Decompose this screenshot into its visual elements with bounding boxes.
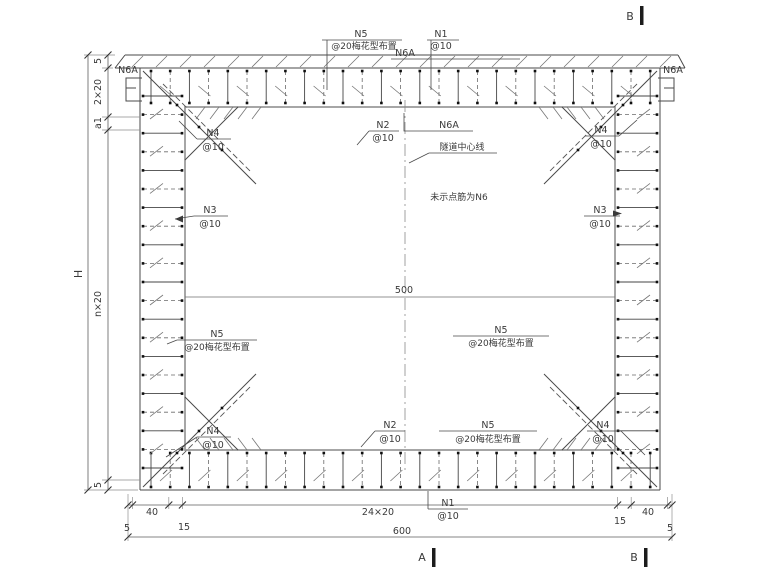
rebar-dot [227, 102, 230, 105]
hatch-line [420, 56, 431, 67]
rebar-dot [617, 355, 620, 358]
haunch-tick [210, 107, 219, 119]
haunch-tick [252, 107, 261, 119]
hatch-line [276, 56, 287, 67]
rebar-dot [476, 452, 479, 455]
rebar-dot [198, 430, 201, 433]
rebar-dot [534, 70, 537, 73]
rebar-dot [181, 299, 184, 302]
hatch-line [204, 56, 215, 67]
rebar-dot [176, 104, 179, 107]
rebar-dot [399, 486, 402, 489]
rebar-dot [323, 486, 326, 489]
tie-bar [150, 332, 163, 342]
rebar-dot [142, 225, 145, 228]
rebar-dot [169, 70, 172, 73]
rebar-dot [617, 318, 620, 321]
haunch-tick [553, 438, 562, 450]
tie-bar [637, 221, 650, 231]
rebar-dot [380, 452, 383, 455]
rebar-dot [142, 299, 145, 302]
rebar-label-n5-right: N5 [494, 325, 507, 336]
tie-bar [150, 146, 163, 156]
rebar-dot [572, 486, 575, 489]
dim-left-5-bottom: 5 [93, 482, 104, 488]
rebar-dot [181, 262, 184, 265]
rebar-dot [438, 70, 441, 73]
rebar-dot [142, 430, 145, 433]
rebar-spacing-n4-bottom-right: @10 [592, 434, 614, 445]
rebar-dot [438, 452, 441, 455]
rebar-dot [342, 70, 345, 73]
rebar-dot [553, 70, 556, 73]
rebar-dot [142, 355, 145, 358]
rebar-dot [246, 486, 249, 489]
rebar-label-n4-top-right: N4 [594, 125, 607, 136]
hatch-line [300, 56, 311, 67]
cad-drawing-page: N5 @20梅花型布置 N1 @10 N6A N6A N6A N2 @10 N6… [0, 0, 760, 570]
section-cut-bar-a-bottom [432, 548, 436, 567]
rebar-dot [553, 452, 556, 455]
hatch-line [444, 56, 455, 67]
rebar-dot [284, 486, 287, 489]
rebar-dot [181, 448, 184, 451]
note-unshown-bars: 未示点筋为N6 [430, 191, 488, 203]
dim-bottom-15-right: 15 [614, 516, 626, 527]
dim-bottom-15-left: 15 [178, 522, 190, 533]
inner-opening-outline [185, 107, 615, 450]
rebar-label-n2-bottom: N2 [383, 420, 396, 431]
rebar-dot [591, 452, 594, 455]
rebar-dot [476, 486, 479, 489]
rebar-dot [380, 70, 383, 73]
rebar-dot [181, 374, 184, 377]
rebar-dot [176, 452, 179, 455]
rebar-label-n3-left: N3 [203, 205, 216, 216]
rebar-spacing-n5-bottom: @20梅花型布置 [455, 433, 520, 445]
rebar-dot [227, 486, 230, 489]
tie-bar [150, 444, 163, 454]
rebar-dot [591, 102, 594, 105]
tie-bar [150, 407, 163, 417]
rebar-dot [438, 102, 441, 105]
rebar-dot [611, 452, 614, 455]
section-cut-bar-b-bottom [644, 548, 648, 567]
rebar-dot [142, 188, 145, 191]
rebar-spacing-n1-bottom: @10 [437, 511, 459, 522]
leader-arrow-n3-left [175, 216, 183, 223]
rebar-dot [656, 411, 659, 414]
rebar-dot [617, 262, 620, 265]
rebar-dot [515, 102, 518, 105]
rebar-label-n2-top: N2 [376, 120, 389, 131]
rebar-dot [419, 70, 422, 73]
rebar-label-n1-bottom: N1 [441, 498, 454, 509]
rebar-dot [142, 448, 145, 451]
rebar-dot [188, 70, 191, 73]
rebar-dot [649, 102, 652, 105]
rebar-dot [656, 355, 659, 358]
rebar-dot [438, 486, 441, 489]
rebar-dot [656, 392, 659, 395]
rebar-dot [380, 102, 383, 105]
rebar-dot [656, 225, 659, 228]
rebar-dot [188, 102, 191, 105]
rebar-dot [181, 206, 184, 209]
slab-rebar-ticks [150, 70, 652, 489]
rebar-dot [142, 337, 145, 340]
rebar-label-n5-top: N5 [354, 29, 367, 40]
rebar-dot [188, 486, 191, 489]
rebar-dot [323, 102, 326, 105]
rebar-label-n5-bottom: N5 [481, 420, 494, 431]
rebar-dot [142, 318, 145, 321]
haunch-tick [553, 107, 562, 119]
hatch-line [228, 56, 239, 67]
rebar-spacing-n4-top-left: @10 [202, 142, 224, 153]
rebar-dot [534, 102, 537, 105]
section-marker-b-bottom: B [630, 551, 638, 564]
rebar-dot [150, 70, 153, 73]
rebar-dot [591, 486, 594, 489]
hatch-line [348, 56, 359, 67]
rebar-dot [495, 102, 498, 105]
rebar-dot [265, 102, 268, 105]
rebar-dot [246, 70, 249, 73]
rebar-dot [303, 486, 306, 489]
rebar-dot [181, 169, 184, 172]
corner-haunch-bars [143, 71, 657, 487]
rebar-spacing-n1-top: @10 [430, 41, 452, 52]
rebar-dot [181, 113, 184, 116]
rebar-dot [181, 355, 184, 358]
rebar-dot [617, 225, 620, 228]
rebar-dot [142, 244, 145, 247]
tie-bar [150, 109, 163, 119]
rebar-dot [457, 486, 460, 489]
rebar-dot [419, 452, 422, 455]
rebar-dot [617, 392, 620, 395]
rebar-label-n4-bottom-left: N4 [206, 426, 219, 437]
rebar-dot [495, 452, 498, 455]
rebar-dot [515, 70, 518, 73]
rebar-dot [265, 486, 268, 489]
rebar-dot [188, 452, 191, 455]
dim-overall-height: H [72, 270, 85, 278]
rebar-dot [323, 70, 326, 73]
rebar-dot [265, 70, 268, 73]
rebar-dot [323, 452, 326, 455]
haunch-tick [595, 107, 604, 119]
dim-left-nx20: n×20 [93, 291, 104, 317]
rebar-dot [142, 151, 145, 154]
rebar-dot [181, 244, 184, 247]
rebar-dot [656, 374, 659, 377]
rebar-dot [181, 95, 184, 98]
rebar-dot [617, 374, 620, 377]
rebar-dot [207, 486, 210, 489]
rebar-dot [617, 132, 620, 135]
rebar-dot [617, 244, 620, 247]
rebar-dot [617, 206, 620, 209]
hatch-line [588, 56, 599, 67]
rebar-dot [656, 448, 659, 451]
rebar-dot [617, 337, 620, 340]
rebar-dot [419, 486, 422, 489]
haunch-tick [238, 107, 247, 119]
rebar-dot [630, 70, 633, 73]
rebar-dot [577, 149, 580, 152]
tie-bar [637, 369, 650, 379]
tunnel-centerline-label: 隧道中心线 [439, 141, 484, 153]
rebar-label-n4-top-left: N4 [206, 128, 219, 139]
rebar-dot [181, 467, 184, 470]
haunch-tick [196, 107, 205, 119]
tie-bar [150, 183, 163, 193]
rebar-dot [622, 452, 625, 455]
rebar-label-n6a-mid: N6A [439, 120, 459, 131]
rebar-dot [399, 70, 402, 73]
rebar-dot [630, 452, 633, 455]
rebar-dot [617, 169, 620, 172]
rebar-dot [656, 337, 659, 340]
dim-left-2x20: 2×20 [93, 79, 104, 105]
rebar-dot [534, 486, 537, 489]
rebar-dot [419, 102, 422, 105]
hatch-line [516, 56, 527, 67]
hatch-line [180, 56, 191, 67]
rebar-dot [515, 486, 518, 489]
tie-bar [637, 146, 650, 156]
rebar-dot [656, 188, 659, 191]
haunch-tick [252, 438, 261, 450]
rebar-dot [617, 467, 620, 470]
rebar-dot [342, 486, 345, 489]
rebar-spacing-n4-top-right: @10 [590, 139, 612, 150]
rebar-dot [553, 486, 556, 489]
rebar-dot [630, 102, 633, 105]
rebar-spacing-n2-top: @10 [372, 133, 394, 144]
rebar-dot [303, 102, 306, 105]
rebar-dot [142, 95, 145, 98]
rebar-dot [142, 374, 145, 377]
rebar-dot [380, 486, 383, 489]
rebar-dot [142, 281, 145, 284]
rebar-dot [457, 70, 460, 73]
rebar-dot [142, 169, 145, 172]
rebar-dot [169, 102, 172, 105]
rebar-dot [495, 486, 498, 489]
rebar-label-n6a-top: N6A [395, 48, 415, 59]
dim-inner-width: 500 [395, 285, 413, 296]
rebar-dot [656, 151, 659, 154]
tie-bar [637, 183, 650, 193]
rebar-dot [495, 70, 498, 73]
rebar-dot [656, 262, 659, 265]
rebar-dot [142, 113, 145, 116]
rebar-dot [142, 467, 145, 470]
hatch-line [324, 56, 335, 67]
rebar-dot [656, 467, 659, 470]
haunch-tick [539, 438, 548, 450]
tie-bar [637, 407, 650, 417]
rebar-dot [142, 262, 145, 265]
rebar-dot [476, 102, 479, 105]
haunch-tick [238, 438, 247, 450]
rebar-dot [142, 392, 145, 395]
rebar-dot [342, 452, 345, 455]
rebar-dot [617, 299, 620, 302]
rebar-label-n5-left: N5 [210, 329, 223, 340]
rebar-dot [622, 104, 625, 107]
rebar-dot [265, 452, 268, 455]
rebar-dot [617, 448, 620, 451]
rebar-dot [142, 411, 145, 414]
dim-bottom-40-left: 40 [146, 507, 158, 518]
rebar-dot [591, 70, 594, 73]
dim-overall-width: 600 [393, 526, 411, 537]
rebar-dot [617, 151, 620, 154]
rebar-dot [246, 452, 249, 455]
tie-bar [637, 258, 650, 268]
rebar-spacing-n5-right: @20梅花型布置 [468, 337, 533, 349]
hatch-line [636, 56, 647, 67]
rebar-dot [656, 318, 659, 321]
rebar-dot [611, 70, 614, 73]
rebar-spacing-n5-left: @20梅花型布置 [184, 341, 249, 353]
rebar-spacing-n3-left: @10 [199, 219, 221, 230]
rebar-dot [656, 113, 659, 116]
dim-bottom-24x20: 24×20 [362, 507, 394, 518]
hatch-line [540, 56, 551, 67]
section-cut-bar-b-top [640, 6, 644, 25]
rebar-dot [611, 102, 614, 105]
rebar-label-n6a-left: N6A [118, 65, 138, 76]
rebar-label-n4-bottom-right: N4 [596, 420, 609, 431]
hatch-line [492, 56, 503, 67]
rebar-dot [198, 126, 201, 129]
tie-bar [150, 221, 163, 231]
rebar-label-n6a-right: N6A [663, 65, 683, 76]
rebar-dot [649, 70, 652, 73]
rebar-dot [572, 102, 575, 105]
corner-rebar-ticks [176, 104, 625, 455]
rebar-dot [617, 281, 620, 284]
rebar-dot [207, 452, 210, 455]
rebar-dot [227, 70, 230, 73]
rebar-dot [361, 486, 364, 489]
hatch-line [468, 56, 479, 67]
hatch-line [372, 56, 383, 67]
rebar-dot [611, 486, 614, 489]
rebar-dot [617, 188, 620, 191]
hatch-line [564, 56, 575, 67]
rebar-dot [207, 70, 210, 73]
rebar-dot [656, 281, 659, 284]
dim-left-a1: a1 [93, 117, 104, 129]
rebar-dot [399, 452, 402, 455]
rebar-dot [181, 411, 184, 414]
rebar-dot [656, 132, 659, 135]
hatch-line [156, 56, 167, 67]
section-markers: B A B [418, 6, 647, 567]
rebar-dot [221, 407, 224, 410]
rebar-dot [342, 102, 345, 105]
rebar-dot [303, 452, 306, 455]
rebar-dot [617, 411, 620, 414]
rebar-dot [656, 430, 659, 433]
dimension-texts: 500 5 40 15 24×20 15 40 5 600 5 2×20 a1 … [72, 58, 673, 537]
section-marker-b-top: B [626, 10, 634, 23]
haunch-tick [581, 107, 590, 119]
rebar-dot [617, 95, 620, 98]
rebar-dot [656, 299, 659, 302]
dim-bottom-5-left: 5 [124, 523, 130, 534]
rebar-dot [303, 70, 306, 73]
rebar-dot [361, 452, 364, 455]
rebar-dot [457, 102, 460, 105]
rebar-dot [476, 70, 479, 73]
tie-bar [637, 109, 650, 119]
rebar-dot [361, 70, 364, 73]
haunch-tick [539, 107, 548, 119]
rebar-dot [649, 452, 652, 455]
rebar-dot [150, 102, 153, 105]
rebar-spacing-n4-bottom-left: @10 [202, 440, 224, 451]
hatch-line [612, 56, 623, 67]
rebar-dot [577, 407, 580, 410]
hatch-line [252, 56, 263, 67]
rebar-dot [656, 244, 659, 247]
rebar-dot [617, 113, 620, 116]
rebar-dot [656, 206, 659, 209]
haunch-tick [581, 438, 590, 450]
rebar-dot [142, 132, 145, 135]
rebar-dot [150, 486, 153, 489]
rebar-dot [181, 188, 184, 191]
rebar-dot [630, 486, 633, 489]
rebar-dot [181, 318, 184, 321]
tie-bar [150, 295, 163, 305]
rebar-dot [284, 452, 287, 455]
rebar-dot [361, 102, 364, 105]
rebar-dot [181, 430, 184, 433]
rebar-dot [572, 452, 575, 455]
rebar-dot [181, 225, 184, 228]
rebar-section-drawing: N5 @20梅花型布置 N1 @10 N6A N6A N6A N2 @10 N6… [0, 0, 760, 570]
rebar-dot [284, 70, 287, 73]
rebar-dot [181, 337, 184, 340]
tie-bar [150, 258, 163, 268]
dim-bottom-5-right: 5 [667, 523, 673, 534]
rebar-label-n1-top: N1 [434, 29, 447, 40]
tie-bar [150, 369, 163, 379]
rebar-dot [181, 151, 184, 154]
rebar-dot [142, 206, 145, 209]
dim-left-5-top: 5 [93, 58, 104, 64]
rebar-dot [207, 102, 210, 105]
rebar-dot [181, 392, 184, 395]
rebar-dot [227, 452, 230, 455]
rebar-dot [457, 452, 460, 455]
tie-bar [637, 332, 650, 342]
rebar-dot [399, 102, 402, 105]
rebar-spacing-n3-right: @10 [589, 219, 611, 230]
rebar-dot [649, 486, 652, 489]
rebar-dot [534, 452, 537, 455]
section-marker-a-bottom: A [418, 551, 426, 564]
rebar-dot [181, 132, 184, 135]
